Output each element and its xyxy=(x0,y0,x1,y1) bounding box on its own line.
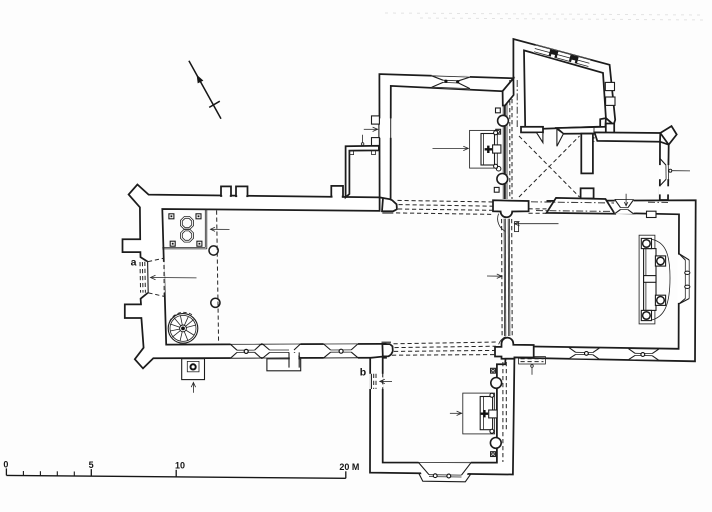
svg-text:b: b xyxy=(360,367,366,379)
svg-text:0: 0 xyxy=(3,459,8,469)
svg-text:5: 5 xyxy=(89,460,94,470)
svg-text:a: a xyxy=(131,256,137,268)
svg-text:20 M: 20 M xyxy=(339,462,359,472)
svg-text:10: 10 xyxy=(175,461,185,471)
